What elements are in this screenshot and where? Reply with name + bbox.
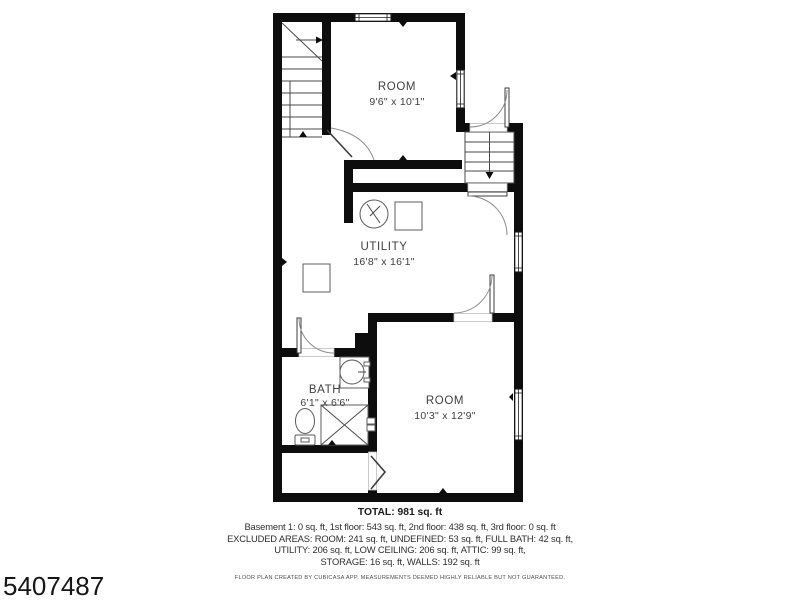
floor-areas-line: Basement 1: 0 sq. ft, 1st floor: 543 sq.…: [0, 521, 800, 533]
window-icon: [457, 70, 464, 108]
room-label: ROOM: [378, 81, 416, 93]
window-icon: [515, 389, 522, 440]
appliance-icon: [395, 202, 422, 230]
room-dimensions: 6'1" x 6'6": [300, 397, 349, 409]
room-label: UTILITY: [360, 241, 407, 253]
room-dimensions: 9'6" x 10'1": [369, 96, 424, 108]
room-label: BATH: [309, 384, 341, 396]
excluded-areas-line: UTILITY: 206 sq. ft, LOW CEILING: 206 sq…: [0, 544, 800, 556]
image-number: 5407487: [3, 571, 104, 600]
room-dimensions: 10'3" x 12'9": [414, 410, 476, 422]
sink-icon: [340, 357, 370, 388]
area-summary: TOTAL: 981 sq. ft Basement 1: 0 sq. ft, …: [0, 507, 800, 581]
open-doorway-icon: [369, 452, 386, 490]
cubicasa-disclaimer: FLOOR PLAN CREATED BY CUBICASA APP, MEAS…: [0, 575, 800, 581]
stairs-up-icon: [282, 23, 323, 137]
excluded-areas-line: STORAGE: 16 sq. ft, WALLS: 192 sq. ft: [0, 556, 800, 568]
total-area: TOTAL: 981 sq. ft: [0, 507, 800, 518]
shower-icon: [321, 405, 375, 445]
door-arc-icon: [297, 318, 334, 357]
door-arc-icon: [454, 275, 494, 322]
stairs-down-icon: [465, 132, 514, 183]
excluded-areas-line: EXCLUDED AREAS: ROOM: 241 sq. ft, UNDEFI…: [0, 533, 800, 545]
toilet-icon: [295, 409, 315, 446]
floor-plan-page: ROOM 9'6" x 10'1" UTILITY 16'8" x 16'1" …: [0, 0, 800, 600]
room-dimensions: 16'8" x 16'1": [353, 256, 415, 268]
door-arc-icon: [468, 184, 507, 236]
appliance-icon: [303, 264, 330, 292]
room-label: ROOM: [426, 395, 464, 407]
door-arc-icon: [470, 88, 509, 132]
window-icon: [355, 14, 391, 21]
door-arc-icon: [327, 128, 374, 160]
window-icon: [515, 232, 522, 272]
water-heater-icon: [360, 200, 388, 228]
